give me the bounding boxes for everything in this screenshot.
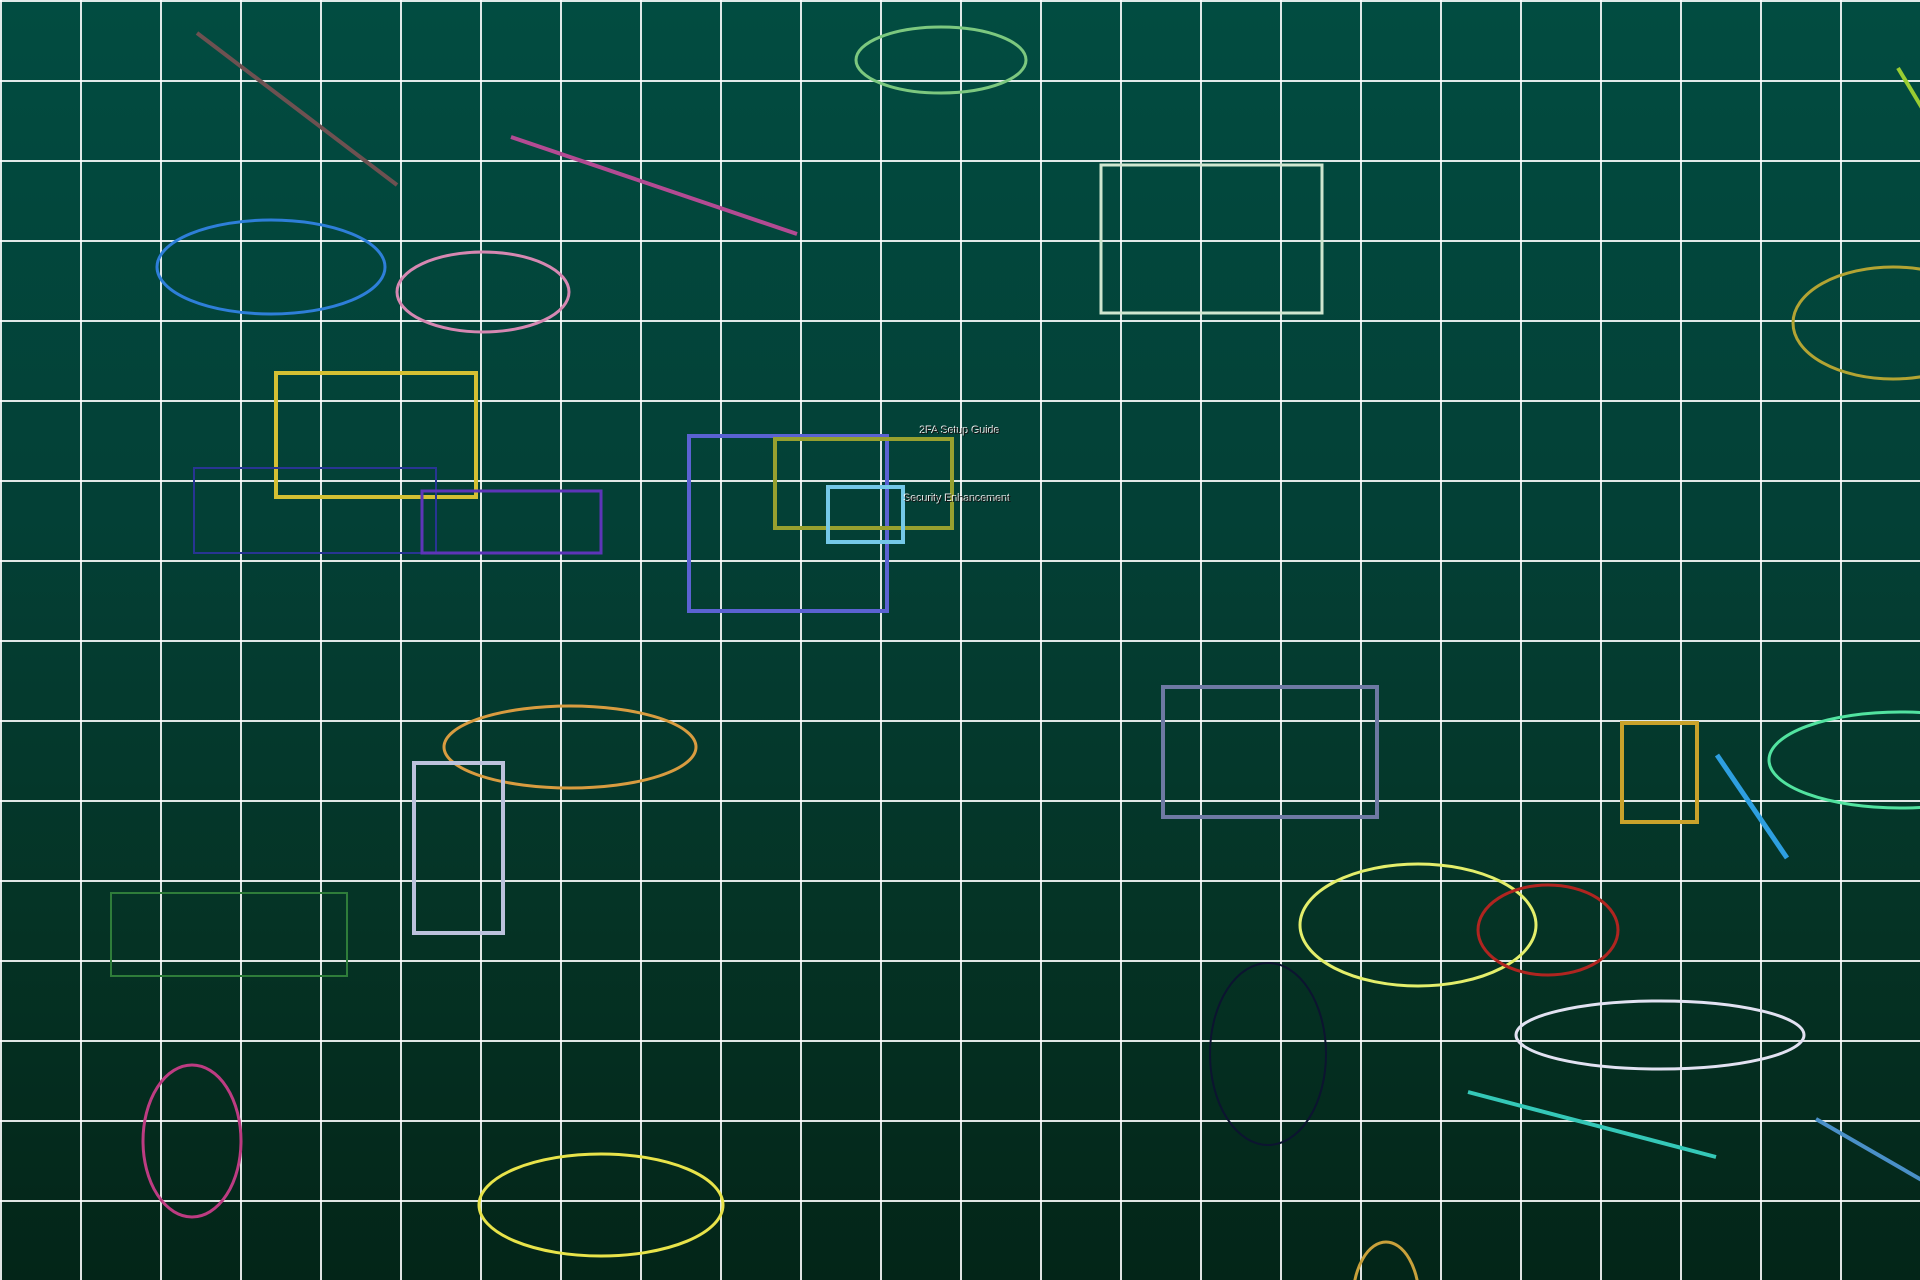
canvas-stage: 2FA Setup Guide Security Enhancement <box>0 0 1920 1280</box>
navy-rect-left <box>194 468 436 553</box>
orange-ellipse-center-left <box>444 706 696 788</box>
gold-ellipse-bottom-arc <box>1353 1242 1419 1280</box>
yellow-ellipse-right <box>1300 864 1536 986</box>
white-ellipse-bottom-right <box>1516 1001 1804 1069</box>
black-ellipse-bottom <box>1210 963 1326 1145</box>
yellow-rect-left <box>276 373 476 497</box>
label-security-enhancement: Security Enhancement <box>904 493 1011 506</box>
gold-rect-right <box>1622 723 1697 822</box>
magenta-ellipse-bottom-left <box>143 1065 241 1217</box>
blue-line-right <box>1717 755 1787 858</box>
pink-ellipse-left <box>397 252 569 332</box>
lavender-rect-vertical <box>414 763 503 933</box>
cyan-line-bottom-right <box>1468 1092 1716 1157</box>
spring-green-ellipse-right <box>1769 712 1920 808</box>
yellow-ellipse-bottom <box>479 1154 723 1256</box>
magenta-line-top <box>511 137 797 234</box>
pale-green-rect-top-right <box>1101 165 1322 313</box>
maroon-line-top-left <box>197 33 397 185</box>
green-ellipse-top-center <box>856 27 1026 93</box>
purple-rect-left <box>422 491 601 553</box>
red-ellipse-right <box>1478 885 1618 975</box>
olive-rect-center <box>775 439 952 528</box>
slate-blue-rect-center <box>689 436 887 611</box>
chartreuse-line-top-right <box>1898 68 1920 118</box>
gray-lavender-rect-right <box>1163 687 1377 817</box>
sky-blue-rect-center <box>828 487 903 542</box>
dark-green-rect-bottom-left <box>111 893 347 976</box>
olive-ellipse-right-edge <box>1793 267 1920 379</box>
blue-ellipse-left <box>157 220 385 314</box>
label-2fa-setup-guide: 2FA Setup Guide <box>920 425 1000 438</box>
shape-layer <box>0 0 1920 1280</box>
steel-blue-line-corner <box>1816 1119 1920 1186</box>
